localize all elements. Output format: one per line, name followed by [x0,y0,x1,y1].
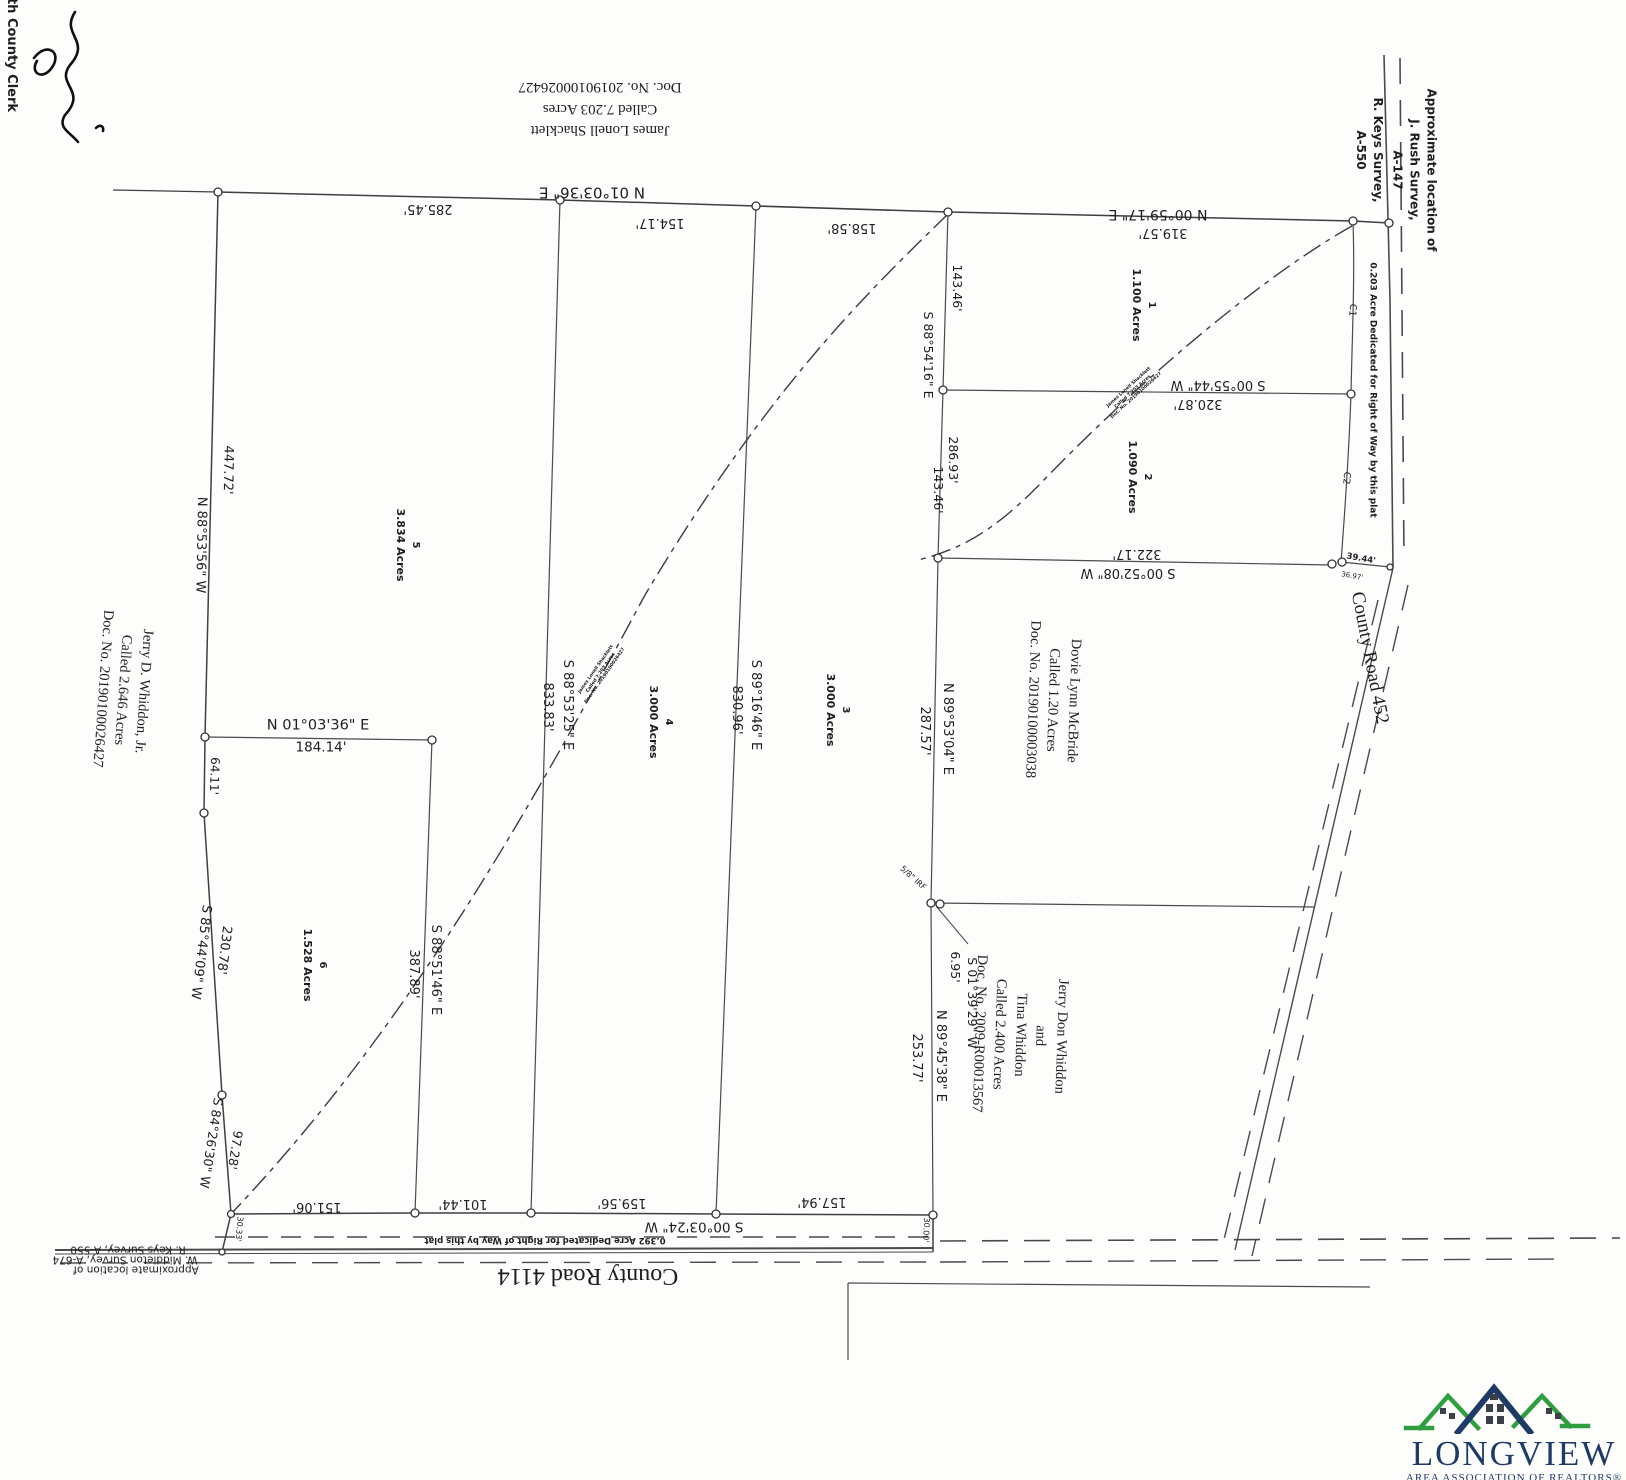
row-dedication-east-note: 0.203 Acre Dedicated for Right of Way by… [1366,262,1379,517]
dim-3033: 30.33' [232,1216,246,1242]
dim-184: 184.14' [296,738,347,757]
dim-833: 833.83' [538,682,556,731]
dim-143b: 143.46' [929,466,947,513]
dim-s885146: S 88°51'46" E [426,925,444,1015]
logo-houses-icon [1402,1382,1626,1434]
adjoiner-west-tract: Jerry D. Whiddon, Jr. Called 2.646 Acres… [87,609,160,771]
dim-n885356: N 88°53'56" W [190,497,210,594]
dim-319: 319.57' [1138,223,1187,241]
survey-note-sw-approx: Approximate location of [73,1262,199,1277]
lot-4-label: 43.000 Acres [645,685,675,758]
dim-159: 159.56' [597,1193,646,1211]
dim-447: 447.72' [217,445,236,494]
plat-drawing [0,0,1626,1480]
road-4114-label: County Road 4114 [498,1259,678,1293]
dim-s005544: S 00°55'44" W [1170,375,1265,393]
adjoiner-southeast-tract: Jerry Don Whiddon and Tina Whiddon Calle… [966,954,1074,1115]
dim-101: 101.44' [438,1194,487,1212]
dim-830: 830.96' [727,685,745,734]
lot-5-label: 53.834 Acres [392,508,422,581]
dim-n895304: N 89°53'04" E [938,683,956,775]
dim-north-bearing: N 01°03'36" E [539,181,645,202]
dim-s885325: S 88°53'25" E [558,660,576,750]
row-dedication-south-note: 0.392 Acre Dedicated for Right of Way by… [424,1234,665,1246]
dim-s013929: S 01°39'29" W [963,957,981,1048]
dim-322: 322.17' [1112,544,1161,562]
dim-320: 320.87' [1173,394,1222,412]
dim-s891646: S 89°16'46" E [746,660,764,750]
dim-mid-bearing: N 01°03'36" E [267,716,369,737]
curve-label-c2: C2 [1339,471,1354,485]
dim-n894538: N 89°45'38" E [931,1010,949,1102]
dim-64: 64.11' [205,757,223,795]
adjoiner-north-tract: James Lonell Shacklett Called 7.203 Acre… [518,76,681,140]
dim-3000: 30.00' [920,1217,932,1242]
dim-ne-bearing: N 00°59'17" E [1109,203,1208,223]
dim-253: 253.77' [907,1033,925,1082]
lot-2-label: 21.090 Acres [1124,440,1154,513]
dim-387: 387.89' [404,949,422,998]
lot-3-label: 33.000 Acres [822,673,852,746]
dim-154: 154.17' [635,213,684,231]
corner-monuments [200,188,1393,1255]
dim-158: 158.58' [827,218,876,236]
dim-287: 287.57' [915,706,933,755]
clerk-signature [0,0,160,180]
survey-note-ne-keys: R. Keys Survey, A-550 [1352,97,1386,202]
dim-285: 285.45' [403,199,452,217]
dim-157: 157.94' [797,1192,846,1210]
dim-s000324: S 00°03'24" W [645,1216,744,1235]
interior-lot-lines [205,200,1390,1215]
survey-plat-page: th County Clerk James Lonell Shacklett C… [0,0,1626,1480]
dim-151: 151.06' [292,1197,341,1215]
lot-6-label: 61.528 Acres [299,928,329,1001]
lot-1-label: 11.100 Acres [1128,268,1158,341]
dim-s005208: S 00°52'08" W [1080,563,1175,581]
dim-695: 6.95' [946,951,964,982]
logo-subtitle: AREA ASSOCIATION OF REALTORS® [1402,1472,1626,1480]
survey-note-ne-rush: Approximate location of J. Rush Survey, … [1388,89,1439,252]
logo-title: LONGVIEW [1402,1436,1626,1471]
longview-realtors-logo: LONGVIEW AREA ASSOCIATION OF REALTORS® [1402,1382,1626,1480]
dim-143a: 143.46' [948,264,966,311]
dim-s885416: S 88°54'16" E [919,312,937,399]
survey-arc-lines [231,214,1352,1214]
adjoiner-east-tract: Dovie Lynn McBride Called 1.20 Acres Doc… [1019,620,1086,780]
curve-label-c1: C1 [1345,303,1360,317]
